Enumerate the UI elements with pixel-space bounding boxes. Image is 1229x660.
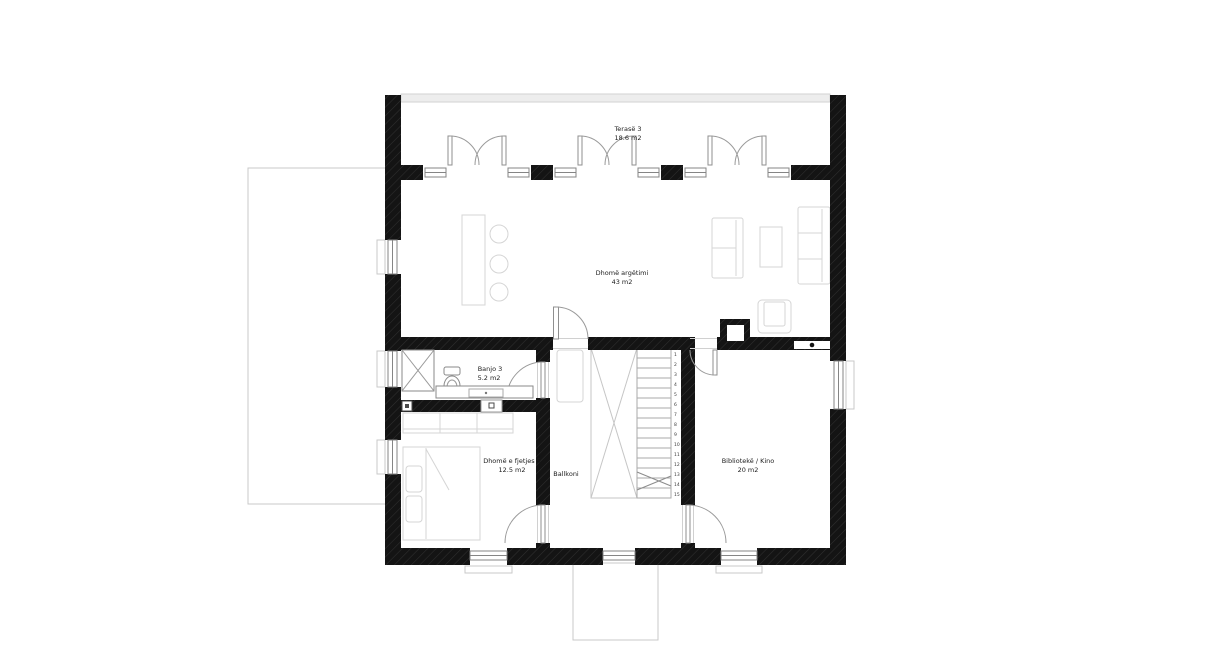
room-area-bedroom: 12.5 m2	[498, 466, 525, 474]
hall-cabinet	[557, 350, 583, 402]
door-swing-arc	[475, 136, 504, 165]
terrace-parapet-edge	[401, 94, 830, 102]
window-sill	[377, 351, 385, 387]
window-sill	[377, 240, 385, 274]
room-label-bath: Banjo 3	[478, 365, 503, 373]
wall-segment	[536, 337, 550, 362]
sidelight-window	[768, 168, 789, 177]
window-sill	[377, 440, 385, 474]
step-number: 1	[674, 352, 677, 358]
wall-niche-box	[481, 400, 502, 412]
room-label-bedroom: Dhomë e fjetjes 5	[483, 457, 541, 465]
terrace-double-door	[448, 136, 506, 165]
sidelight-window	[685, 168, 706, 177]
step-number: 6	[674, 402, 677, 408]
sidelight-window	[638, 168, 659, 177]
wall-segment	[385, 548, 467, 565]
wall-segment	[830, 412, 846, 565]
stair-flight	[637, 348, 671, 498]
duct-mark	[405, 404, 409, 408]
door-leaf	[541, 362, 545, 398]
step-number: 13	[674, 472, 680, 478]
dining-table	[462, 215, 485, 305]
door-leaf	[554, 307, 559, 339]
door-swing-arc	[735, 136, 764, 165]
room-label-balcony: Ballkoni	[553, 470, 579, 478]
room-area-bath: 5.2 m2	[478, 374, 501, 382]
wall-segment	[401, 400, 536, 412]
step-number: 12	[674, 462, 680, 468]
sink-drain	[485, 392, 487, 394]
wall-segment	[661, 165, 683, 180]
lower-balcony-outline	[573, 563, 658, 640]
bedroom-door	[505, 505, 549, 543]
wall-segment	[385, 165, 423, 180]
door-leaf	[713, 350, 717, 375]
dining-chair	[490, 283, 508, 301]
wall-segment	[536, 398, 550, 505]
window	[377, 237, 401, 277]
room-label-library: Bibliotekë / Kino	[722, 457, 775, 465]
room-area-library: 20 m2	[738, 466, 759, 474]
step-number: 7	[674, 412, 677, 418]
staircase: 1 2 3 4 5 6 7 8 9 10 11 12 13 14 15	[591, 348, 680, 498]
bed	[403, 447, 480, 540]
wall-segment	[385, 277, 401, 348]
window-sill	[465, 566, 512, 573]
step-number: 5	[674, 392, 677, 398]
window-sill	[716, 566, 762, 573]
step-number: 10	[674, 442, 680, 448]
door-swing-arc	[710, 136, 739, 165]
stair-step-numbers: 1 2 3 4 5 6 7 8 9 10 11 12 13 14 15	[674, 352, 680, 498]
wall-segment	[791, 165, 846, 180]
wall-segment	[401, 337, 553, 350]
sidelight-window	[425, 168, 446, 177]
wall-segment	[510, 548, 600, 565]
window	[600, 548, 638, 565]
hall-door	[553, 307, 588, 349]
chimney-flue	[727, 325, 744, 341]
sidelight-window	[555, 168, 576, 177]
terrace-double-door	[708, 136, 766, 165]
door-leaf	[502, 136, 506, 165]
wardrobe	[403, 413, 513, 433]
floor-plan-drawing: 1 2 3 4 5 6 7 8 9 10 11 12 13 14 15	[0, 0, 1229, 660]
door-leaf	[762, 136, 766, 165]
step-number: 9	[674, 432, 677, 438]
library-lower-door	[683, 505, 727, 543]
door-leaf	[578, 136, 582, 165]
flue-dot	[810, 343, 815, 348]
window	[465, 548, 512, 573]
floor-plan-canvas: 1 2 3 4 5 6 7 8 9 10 11 12 13 14 15	[0, 0, 1229, 660]
wall-segment	[760, 548, 846, 565]
side-terrace-outline	[248, 168, 390, 504]
door-swing-arc	[580, 136, 609, 165]
window	[377, 437, 401, 477]
door-swing-arc	[556, 307, 588, 339]
step-number: 2	[674, 362, 677, 368]
room-area-terrace: 18.6 m2	[614, 134, 641, 142]
step-number: 14	[674, 482, 680, 488]
step-number: 4	[674, 382, 677, 388]
room-label-living: Dhomë argëtimi	[596, 269, 649, 277]
wall-segment	[588, 337, 690, 350]
coffee-table	[760, 227, 782, 267]
door-leaf	[541, 505, 545, 543]
door-swing-arc	[450, 136, 479, 165]
step-number: 8	[674, 422, 677, 428]
sidelight-window	[508, 168, 529, 177]
sofa-three-seat	[798, 207, 830, 284]
door-leaf	[448, 136, 452, 165]
dining-chair	[490, 225, 508, 243]
wall-segment	[385, 390, 401, 437]
step-number: 15	[674, 492, 680, 498]
dining-chair	[490, 255, 508, 273]
stair-break-line	[637, 472, 671, 486]
wall-segment	[830, 95, 846, 358]
step-number: 11	[674, 452, 680, 458]
room-label-terrace: Terasë 3	[613, 125, 641, 133]
window-sill	[846, 361, 854, 409]
wall-segment	[531, 165, 553, 180]
room-area-living: 43 m2	[612, 278, 633, 286]
door-leaf	[686, 505, 690, 543]
window	[830, 358, 854, 412]
toilet-tank	[444, 367, 460, 375]
wall-segment	[638, 548, 718, 565]
armchair	[758, 300, 791, 333]
window	[716, 548, 762, 573]
step-number: 3	[674, 372, 677, 378]
window	[377, 348, 401, 390]
door-leaf	[708, 136, 712, 165]
